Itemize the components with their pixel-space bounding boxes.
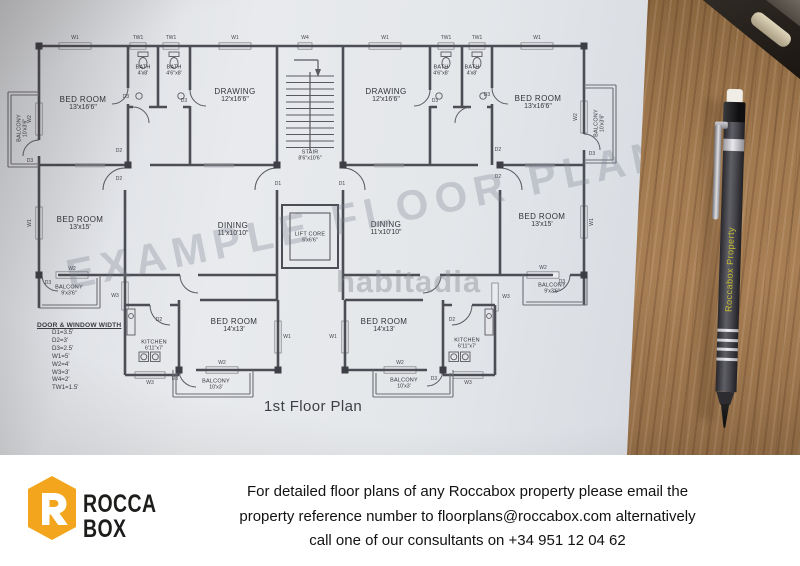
wall-label: TW1 (441, 35, 452, 41)
wall-label: W1 (381, 35, 389, 41)
room-label-drawing: DRAWING12'x16'6" (365, 87, 406, 105)
door-label: D3 (123, 94, 129, 100)
wall-label: W2 (573, 113, 579, 121)
room-label-kitchen: KITCHEN6'11"x7' (454, 338, 480, 351)
roccabox-wordmark: ROCCA BOX (83, 492, 156, 542)
contact-message: For detailed floor plans of any Roccabox… (215, 480, 720, 554)
door-label: D3 (431, 376, 437, 382)
wall-label: W2 (218, 360, 226, 366)
pencil-tip (719, 404, 730, 428)
wall-label: W2 (27, 115, 33, 123)
legend-item: W1=5' (37, 353, 121, 361)
wall-label: W3 (111, 293, 119, 299)
legend-item: W4=2' (37, 376, 121, 384)
wall-label: W1 (533, 35, 541, 41)
pencil-cone (716, 392, 734, 406)
marketing-image: BED ROOM13'x16'6" BATH4'x8' BATH4'6"x8' … (0, 0, 800, 566)
room-label-bedroom: BED ROOM13'x15' (57, 215, 104, 233)
room-label-bedroom: BED ROOM13'x16'6" (515, 94, 562, 112)
door-label: D2 (495, 147, 501, 153)
pencil-brand-text: Roccabox Property (717, 219, 741, 320)
room-label-kitchen: KITCHEN6'11"x7' (141, 340, 167, 353)
door-label: D2 (449, 317, 455, 323)
contact-message-line3: call one of our consultants on +34 951 1… (215, 529, 720, 554)
logo-word-line2: BOX (83, 517, 156, 542)
door-label: D3 (181, 98, 187, 104)
wall-label: W3 (464, 380, 472, 386)
wall-label: W2 (396, 360, 404, 366)
pencil-collar (723, 102, 746, 124)
contact-message-line2: property reference number to floorplans@… (215, 505, 720, 530)
door-label: D3 (559, 279, 565, 285)
room-label-bath: BATH4'6"x8' (433, 65, 448, 78)
door-label: D2 (116, 176, 122, 182)
wall-label: W3 (502, 294, 510, 300)
room-label-bath: BATH4'x8' (464, 65, 479, 78)
legend-title: DOOR & WINDOW WIDTH (37, 322, 121, 329)
room-label-bedroom: BED ROOM14'x13' (211, 317, 258, 335)
wall-label: W1 (231, 35, 239, 41)
room-label-balcony: BALCONY10'x3' (202, 379, 230, 392)
logo-word-line1: ROCCA (83, 492, 156, 517)
room-label-bedroom: BED ROOM14'x13' (361, 317, 408, 335)
door-label: D3 (172, 376, 178, 382)
door-label: D3 (27, 158, 33, 164)
plan-title: 1st Floor Plan (233, 398, 393, 415)
legend-item: D1=3.5' (37, 329, 121, 337)
wall-label: W4 (301, 35, 309, 41)
room-label-bedroom: BED ROOM13'x15' (519, 212, 566, 230)
door-label: D2 (116, 148, 122, 154)
legend-door-window-widths: DOOR & WINDOW WIDTH D1=3.5' D2=3' D3=2.5… (37, 322, 121, 392)
floor-plan: BED ROOM13'x16'6" BATH4'x8' BATH4'6"x8' … (0, 0, 660, 455)
room-label-stair: STAIR8'6"x10'6" (298, 150, 321, 163)
pencil-ring (716, 357, 737, 361)
wall-label: W1 (589, 218, 595, 226)
pencil-ring (717, 338, 738, 342)
room-label-bedroom: BED ROOM13'x16'6" (60, 95, 107, 113)
pencil-band (723, 139, 744, 152)
wall-label: W1 (27, 219, 33, 227)
door-label: D3 (484, 92, 490, 98)
wall-label: TW1 (133, 35, 144, 41)
door-label: D1 (275, 181, 281, 187)
legend-item: D2=3' (37, 337, 121, 345)
watermark-habitadia: habitadia (336, 264, 481, 300)
door-label: D1 (339, 181, 345, 187)
room-label-balcony: BALCONY10'x3'6" (594, 109, 607, 137)
room-label-bath: BATH4'6"x8' (166, 65, 181, 78)
desk-photo: BED ROOM13'x16'6" BATH4'x8' BATH4'6"x8' … (0, 0, 800, 455)
door-label: D3 (45, 280, 51, 286)
wall-label: W1 (329, 334, 337, 340)
legend-item: W2=4' (37, 361, 121, 369)
pencil-ring (717, 329, 738, 333)
wall-label: W2 (539, 265, 547, 271)
wall-label: W1 (283, 334, 291, 340)
room-label-drawing: DRAWING12'x16'6" (214, 87, 255, 105)
legend-item: TW1=1.5' (37, 384, 121, 392)
wall-label: W3 (146, 380, 154, 386)
staircase (286, 60, 334, 150)
room-label-bath: BATH4'x8' (135, 65, 150, 78)
footer-bar: ROCCA BOX For detailed floor plans of an… (0, 455, 800, 566)
wall-label: W1 (71, 35, 79, 41)
door-label: D2 (156, 317, 162, 323)
legend-item: W3=3' (37, 369, 121, 377)
legend-item: D3=2.5' (37, 345, 121, 353)
wall-label: TW1 (166, 35, 177, 41)
door-label: D3 (432, 98, 438, 104)
wall-label: TW1 (472, 35, 483, 41)
contact-message-line1: For detailed floor plans of any Roccabox… (215, 480, 720, 505)
pencil-ring (716, 348, 737, 352)
roccabox-hexagon-logo-icon (27, 475, 77, 541)
room-label-balcony: BALCONY10'x3' (390, 378, 418, 391)
floor-plan-paper: BED ROOM13'x16'6" BATH4'x8' BATH4'6"x8' … (0, 0, 800, 455)
